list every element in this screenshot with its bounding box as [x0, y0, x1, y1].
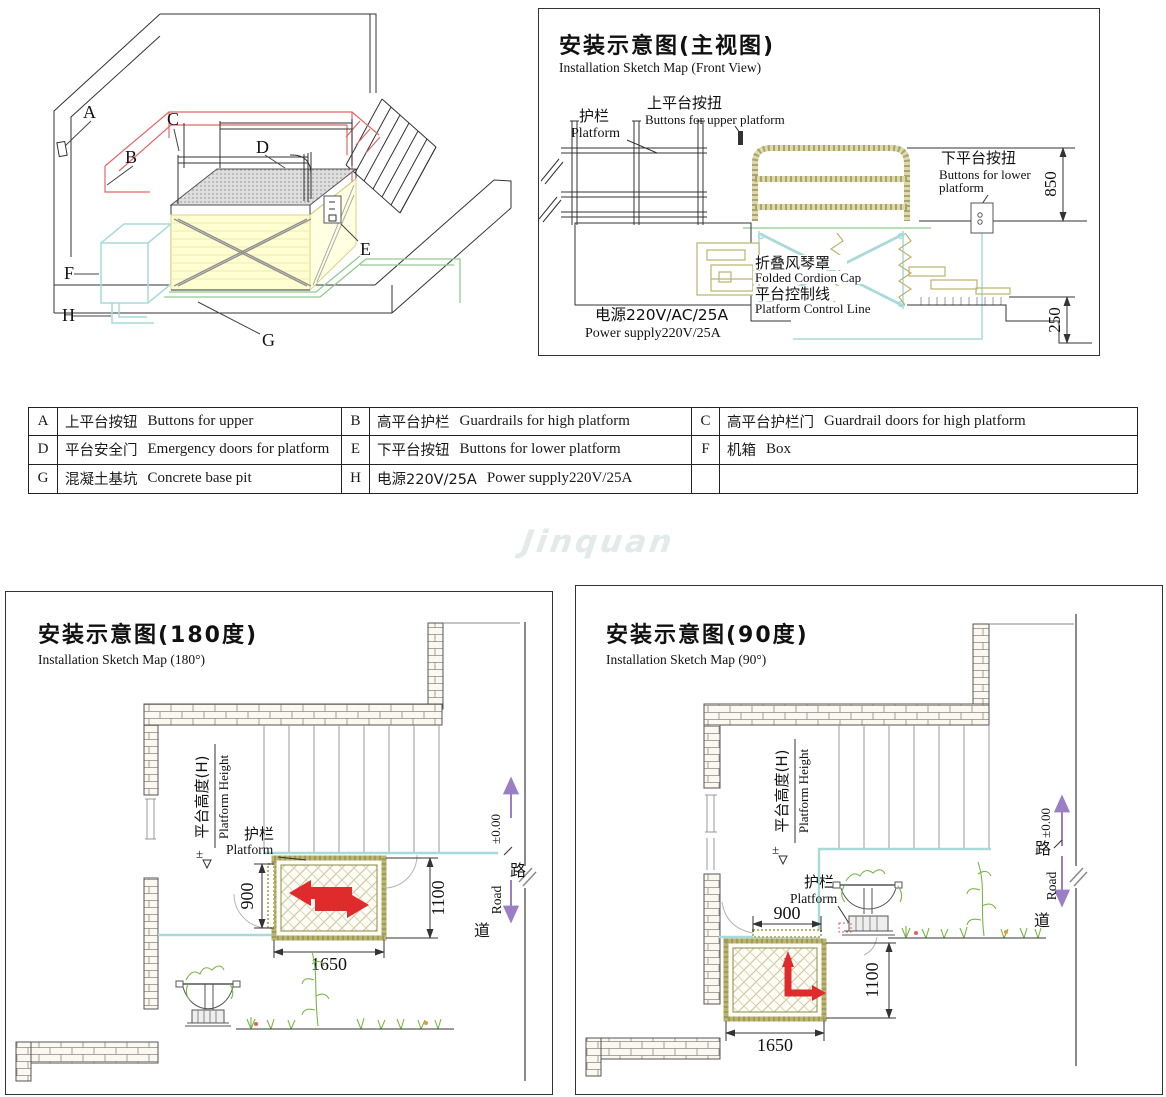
- guardrail-label-en: Platform: [226, 842, 274, 857]
- road-label-en: Road: [489, 886, 504, 915]
- callout-b: B: [125, 147, 137, 167]
- svg-text:Platform Height: Platform Height: [216, 755, 231, 840]
- svg-text:平台高度(H): 平台高度(H): [773, 750, 791, 833]
- upper-platform-guardrail: [539, 121, 707, 225]
- svg-text:900: 900: [774, 903, 801, 923]
- lift-platform: [726, 930, 826, 1019]
- lower-buttons-label-en2: platform: [939, 180, 984, 195]
- svg-text:1650: 1650: [757, 1035, 793, 1055]
- dimension-900: 900: [753, 903, 821, 932]
- legend-key: E: [351, 441, 360, 458]
- legend-key: D: [38, 441, 49, 458]
- level-label: ±0.00: [488, 814, 503, 844]
- planter: [833, 882, 902, 935]
- callout-d: D: [256, 137, 269, 157]
- front-title-cn: 安装示意图(主视图): [559, 33, 775, 59]
- dimension-850: 850: [1041, 148, 1063, 221]
- map90-title-en: Installation Sketch Map (90°): [606, 652, 766, 667]
- legend-cn: 下平台按钮: [377, 439, 450, 460]
- legend-key: B: [350, 413, 360, 430]
- svg-text:250: 250: [1045, 307, 1064, 333]
- control-box: [697, 243, 759, 295]
- installation-drawing-sheet: { "colors": { "direction_arrow_red": "#d…: [0, 0, 1166, 1097]
- legend-cn: 平台安全门: [65, 439, 138, 460]
- legend-key: C: [700, 413, 710, 430]
- legend-table: A 上平台按钮Buttons for upper B 高平台护栏Guardrai…: [28, 407, 1138, 494]
- road-label-en: Road: [1044, 872, 1059, 901]
- dimension-1650: 1650: [726, 1021, 824, 1055]
- legend-key: A: [38, 413, 49, 430]
- callout-e: E: [360, 239, 371, 259]
- map180-title-en: Installation Sketch Map (180°): [38, 652, 205, 667]
- svg-text:900: 900: [237, 883, 257, 910]
- legend-cn: 混凝土基坑: [65, 468, 138, 489]
- guardrail-label-en: Platform: [790, 891, 838, 906]
- dimension-1650: 1650: [274, 940, 384, 974]
- map180-panel: 安装示意图(180度) Installation Sketch Map (180…: [5, 591, 553, 1095]
- legend-en: Buttons for upper: [148, 413, 254, 430]
- upper-button-box: [57, 141, 67, 156]
- legend-cn: 高平台护栏门: [727, 411, 814, 432]
- road-label-cn-bottom: 道: [1034, 911, 1050, 930]
- legend-cn: 上平台按钮: [65, 411, 138, 432]
- svg-text:1100: 1100: [862, 962, 882, 997]
- lower-buttons-label-cn: 下平台按扭: [941, 149, 1016, 167]
- road-label-cn-bottom: 道: [474, 921, 490, 940]
- callout-g: G: [262, 330, 275, 350]
- legend-key: F: [701, 441, 709, 458]
- upper-buttons-label-cn: 上平台按扭: [647, 94, 722, 112]
- upper-button-box: [738, 131, 743, 145]
- upper-buttons-label-en: Buttons for upper platform: [645, 112, 785, 127]
- road: ±0.00 路 Road 道: [474, 622, 536, 1081]
- gate-strip: [753, 930, 821, 937]
- guardrail-label-cn: 护栏: [579, 107, 609, 125]
- power-label-cn: 电源220V/AC/25A: [595, 306, 729, 324]
- lift-platform: [268, 858, 384, 938]
- svg-text:±: ±: [196, 846, 203, 861]
- power-label-en: Power supply220V/25A: [585, 326, 722, 341]
- road-label-cn-top: 路: [510, 861, 526, 880]
- legend-cn: 高平台护栏: [377, 411, 450, 432]
- machine-box-and-power: [101, 224, 171, 323]
- map180-title-cn: 安装示意图(180度): [38, 622, 258, 648]
- road: ±0.00 路 Road 道: [1034, 614, 1087, 1066]
- cordion-label-en: Folded Cordion Cap: [755, 270, 861, 285]
- map90-panel: 安装示意图(90度) Installation Sketch Map (90°)…: [575, 585, 1163, 1095]
- guardrail-label-cn: 护栏: [804, 873, 834, 891]
- platform-height-label: 平台高度(H) Platform Height ±: [772, 739, 811, 864]
- street-steps: [907, 267, 1092, 343]
- svg-text:1100: 1100: [428, 880, 448, 915]
- front-view-panel: 安装示意图(主视图) Installation Sketch Map (Fron…: [538, 8, 1100, 356]
- road-label-cn-top: 路: [1035, 839, 1051, 858]
- callout-h: H: [62, 305, 75, 325]
- stairs: [346, 99, 436, 213]
- map180-drawing: 安装示意图(180度) Installation Sketch Map (180…: [6, 592, 551, 1093]
- isometric-view-drawing: A B C D E F G H: [8, 5, 523, 380]
- map90-drawing: 安装示意图(90度) Installation Sketch Map (90°)…: [576, 586, 1161, 1093]
- svg-text:Platform Height: Platform Height: [796, 749, 811, 834]
- planter: [176, 981, 240, 1026]
- lower-button-box: [971, 203, 993, 233]
- legend-en: Guardrails for high platform: [460, 413, 630, 430]
- front-title-en: Installation Sketch Map (Front View): [559, 60, 761, 75]
- legend-cn: 电源220V/25A: [377, 468, 477, 489]
- legend-en: Emergency doors for platform: [148, 441, 330, 458]
- svg-text:1650: 1650: [311, 954, 347, 974]
- callout-f: F: [64, 263, 74, 283]
- svg-text:±: ±: [772, 842, 779, 857]
- map90-title-cn: 安装示意图(90度): [606, 622, 809, 648]
- legend-en: Concrete base pit: [148, 470, 252, 487]
- dimension-250: 250: [1045, 297, 1067, 343]
- callout-c: C: [167, 109, 179, 129]
- watermark: Jinquan: [519, 524, 677, 560]
- deck-planks: [264, 623, 520, 853]
- svg-text:850: 850: [1041, 171, 1060, 197]
- legend-key: G: [38, 470, 49, 487]
- guardrail-label-en: Platform: [571, 126, 620, 141]
- gate-strip: [268, 864, 274, 928]
- lower-button-box: [324, 196, 341, 223]
- cordion-control-labels: 折叠风琴罩 Folded Cordion Cap 平台控制线 Platform …: [753, 254, 893, 316]
- lift-cage: [755, 148, 907, 221]
- dimension-1100: 1100: [386, 858, 448, 938]
- legend-en: Buttons for lower platform: [460, 441, 621, 458]
- level-label: ±0.00: [1038, 808, 1053, 838]
- callout-a: A: [83, 102, 96, 122]
- legend-en: Box: [766, 441, 791, 458]
- guardrail-label-cn: 护栏: [244, 825, 274, 843]
- legend-en: Guardrail doors for high platform: [824, 413, 1026, 430]
- legend-en: Power supply220V/25A: [487, 470, 632, 487]
- svg-text:平台高度(H): 平台高度(H): [193, 756, 211, 839]
- legend-cn: 机箱: [727, 439, 756, 460]
- dimension-1100: 1100: [826, 943, 896, 1018]
- control-line-label-en: Platform Control Line: [755, 301, 871, 316]
- front-view-drawing: 安装示意图(主视图) Installation Sketch Map (Fron…: [539, 9, 1098, 354]
- legend-key: H: [350, 470, 361, 487]
